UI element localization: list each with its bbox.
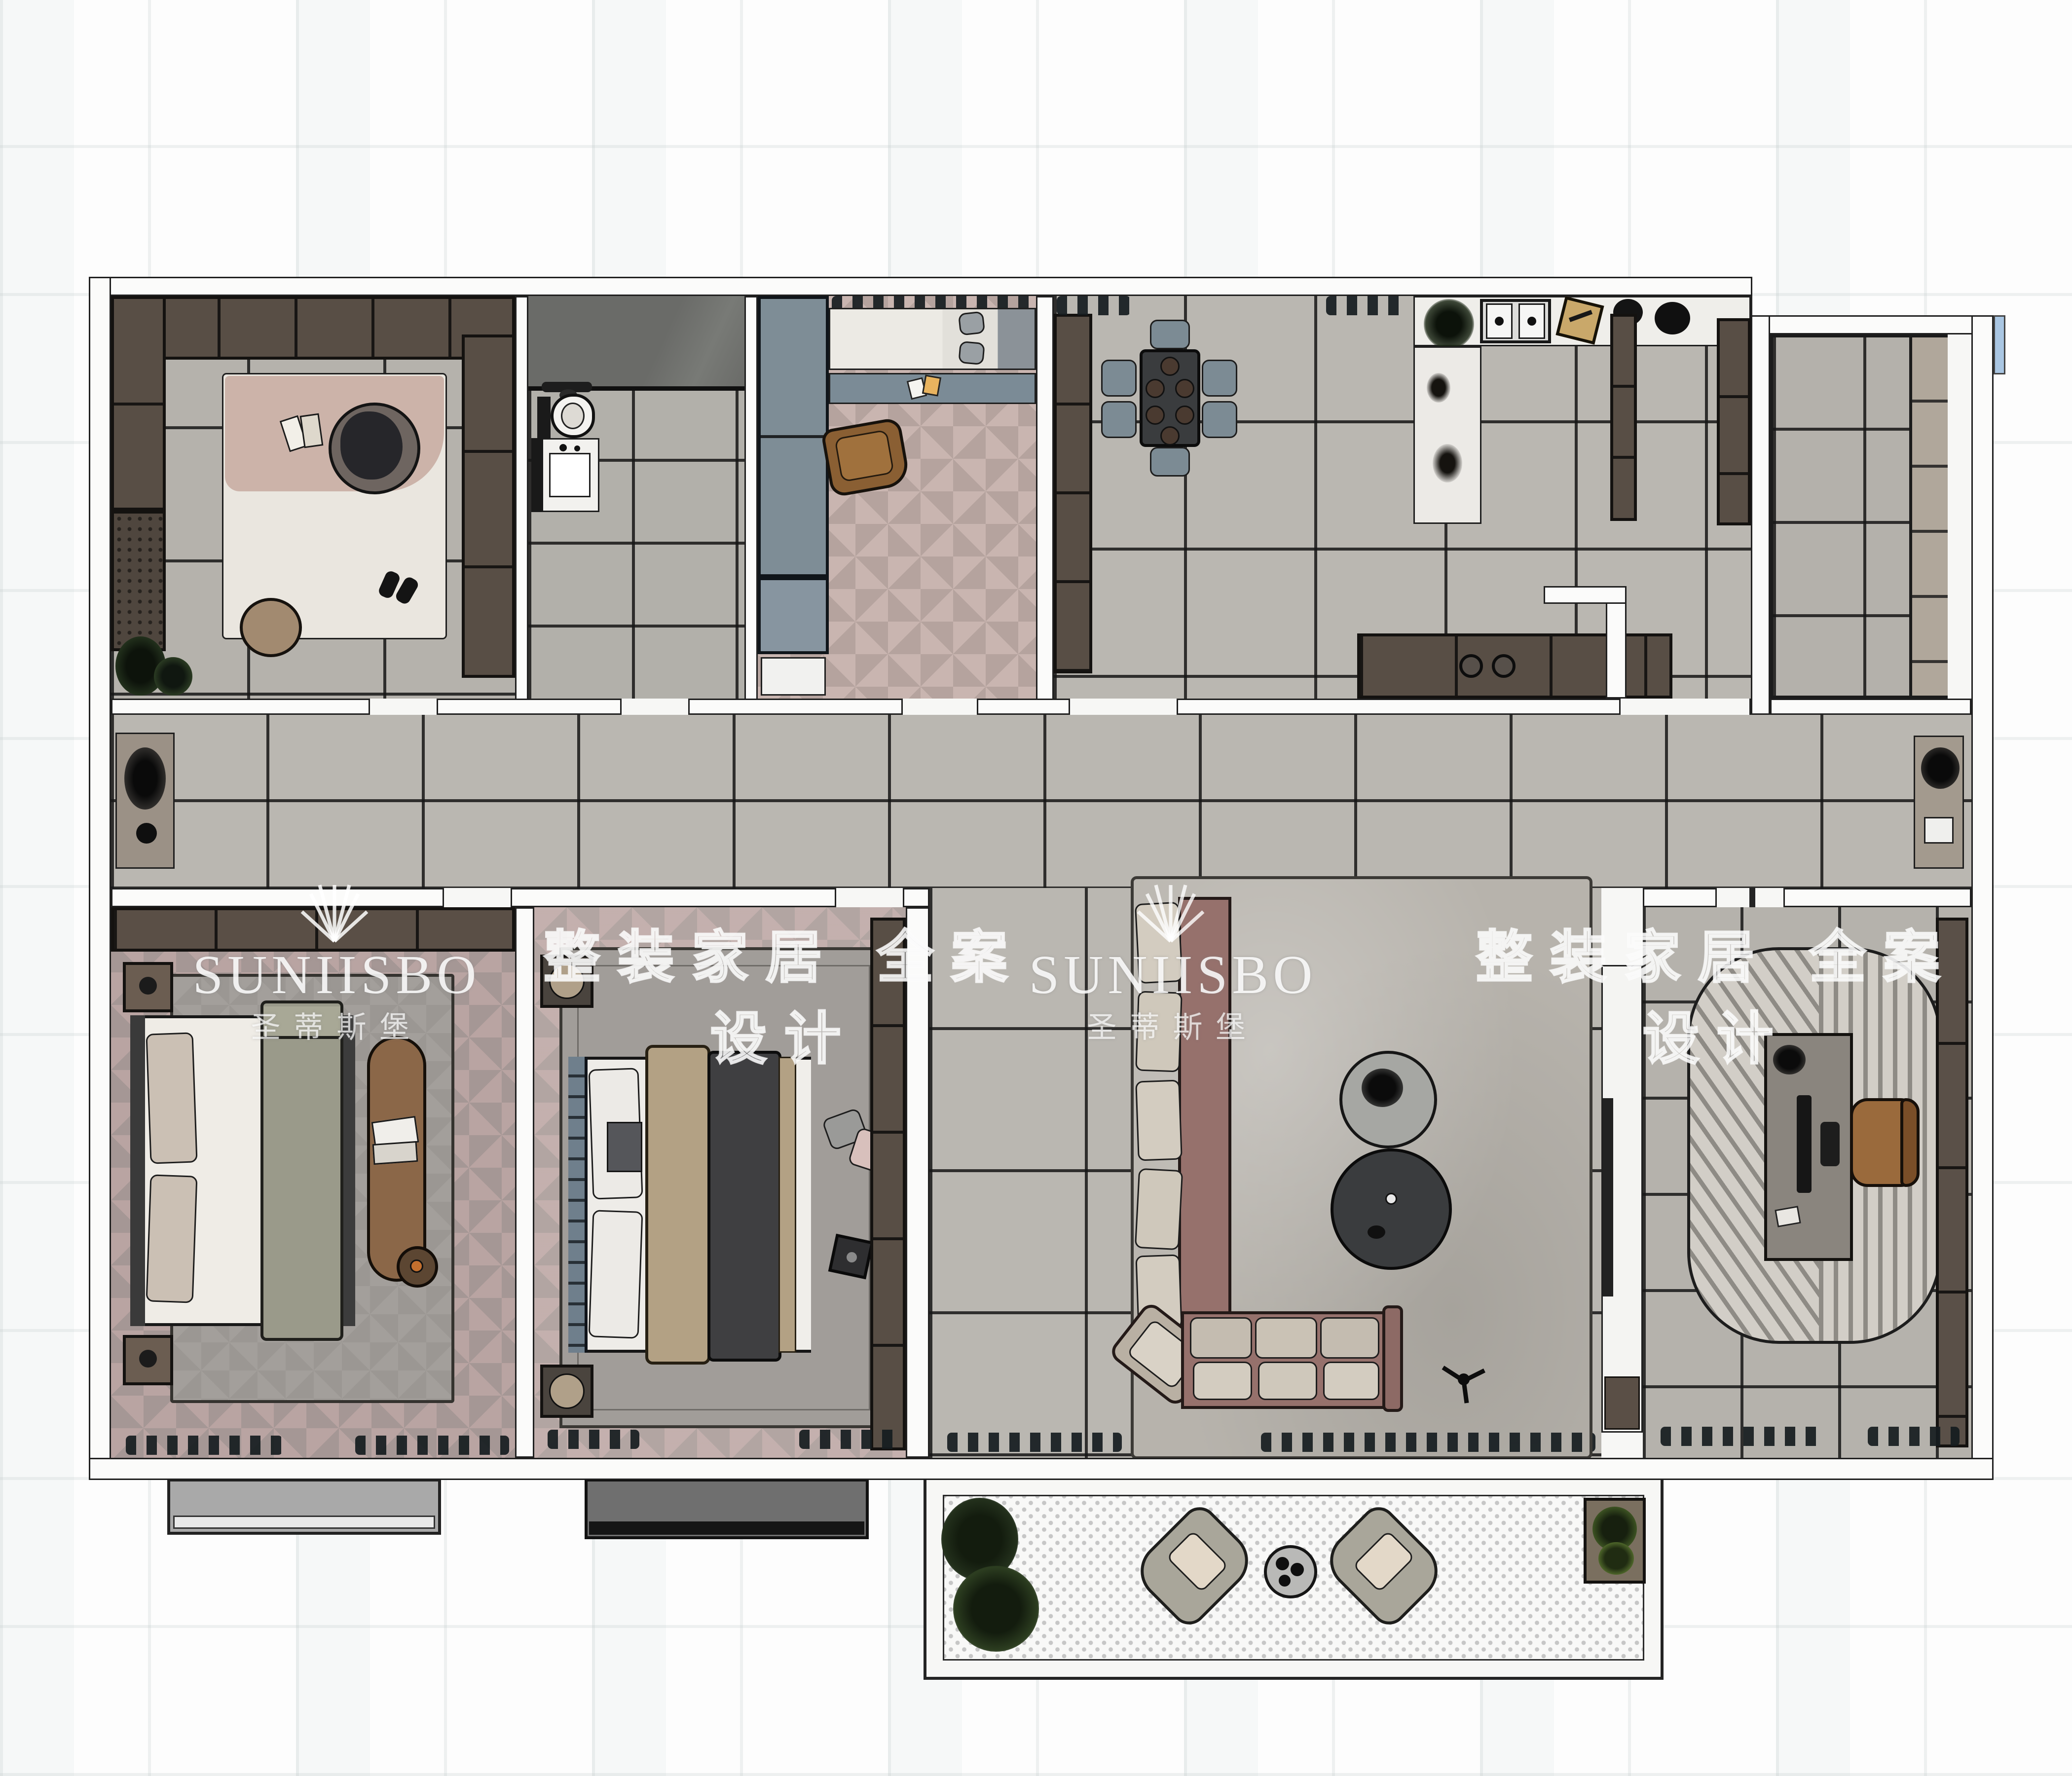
plate-4 [1146,406,1165,425]
hallway-floor [111,715,1971,888]
vanity-soap [574,445,580,451]
dining-chair-top [1150,320,1190,349]
desk-monitor [1797,1095,1812,1193]
wall-outer-top-right-wing [1752,315,1994,334]
vanity-cabinet-side [531,438,543,512]
kitchen-pot-2 [1655,302,1690,334]
wall-kitchen-utility [1751,315,1770,715]
guest-sheet-white [796,1060,811,1350]
hall-top-wall-4 [977,699,1070,715]
hall-top-wall-5 [1177,699,1621,715]
wall-outer-bottom [89,1458,1994,1480]
hallway-plant [124,747,166,810]
wall-outer-left [89,277,111,1480]
cloakroom-plant-2 [154,657,192,696]
island-flower-deco-2 [1433,444,1462,482]
toilet-tank [537,397,551,438]
tv-screen [1603,1098,1613,1296]
brand-watermark-right: SUNIISBO [992,944,1354,1008]
guest-curtain-left [548,1430,639,1449]
wall-outer-top [89,277,1752,296]
guest-pillow-2 [589,1210,643,1338]
desk-keyboard [1820,1122,1840,1166]
brand-watermark-cn-left: 圣蒂斯堡 [222,1003,451,1046]
dining-chair-left-2 [1101,401,1137,438]
cloakroom-left-cabinet-low [111,511,166,651]
plate-2 [1146,379,1165,398]
study-curtain-left [1661,1427,1826,1446]
dining-tall-cabinet [1054,314,1092,673]
wall-outer-right [1971,315,1994,1480]
dining-chair-left-1 [1101,360,1137,397]
console-plant [1921,747,1960,789]
sofa-armrest [1382,1305,1403,1412]
guest-curtain-right [799,1430,897,1449]
shower-zone-marble [528,296,744,391]
cooktop-burner-1 [1459,654,1483,678]
coffee-table-cup [1385,1193,1397,1205]
coffee-table-dark [1331,1148,1452,1270]
hall-bottom-wall-1 [111,888,444,907]
island-flower-deco [1427,373,1450,403]
guest-stool-dot [847,1252,857,1262]
master-blanket-olive [260,1000,343,1341]
slogan-watermark-left: 整装家居 全案设计 [525,912,1043,1074]
sofa-front-cushion-3 [1323,1362,1379,1400]
coffee-table-snack [1368,1225,1385,1239]
sofa-front-cushion-1 [1193,1362,1252,1400]
kitchen-pantry-column [1610,314,1637,521]
vanity-faucet [559,444,567,451]
bay-window-guest-sill [589,1521,864,1535]
guest-duvet-charcoal [707,1051,781,1362]
daybed-magazine-2 [372,1141,418,1165]
small-bedroom-cabinet-low [758,577,829,654]
cloakroom-right-wardrobe [462,334,515,678]
balcony-cup-1 [1276,1557,1289,1570]
dining-window-curtain-right [1326,296,1409,315]
brand-logo-icon-left [296,876,373,944]
sofa-seat-cushion-2 [1255,1317,1317,1359]
sofa-seat-cushion-1 [1190,1317,1252,1359]
small-bed-pillow-2 [958,341,985,365]
hall-bottom-wall-5 [1783,888,1971,907]
plate-3 [1175,379,1194,398]
tv-console [1604,1376,1640,1430]
balcony-cup-3 [1279,1575,1291,1587]
kitchen-herb-plant [1424,299,1474,349]
pouf [240,598,302,657]
sofa-back-cushion-3 [1135,1079,1183,1161]
living-curtain-right [1261,1433,1595,1452]
small-bedroom-wardrobe [758,296,829,577]
plate-1 [1160,357,1180,376]
daybed-tray-snack [410,1259,423,1273]
master-lamp-bottom [139,1350,157,1368]
toilet-seat [561,403,585,429]
brand-watermark-left: SUNIISBO [155,944,518,1008]
bay-window-master-sill [173,1516,435,1529]
small-bed [829,308,1036,370]
plate-6 [1160,426,1180,445]
sofa-back-cushion-4 [1135,1168,1183,1250]
sink-drain-r [1527,317,1536,326]
sink-drain-l [1495,317,1504,326]
cloakroom-top-wardrobe [138,296,515,360]
hall-top-wall-1 [111,699,370,715]
cloakroom-left-wardrobe [111,296,166,511]
lounge-chair-seat [834,429,894,482]
hall-top-wall-2 [437,699,622,715]
balcony-planter-greens-2 [1598,1542,1634,1575]
master-pillow-1 [146,1032,197,1164]
cooktop-burner-2 [1492,654,1516,678]
dining-chair-right-1 [1202,360,1237,397]
entry-closet [1717,318,1751,525]
hall-bottom-wall-4 [1643,888,1717,907]
master-headboard [130,1015,145,1326]
kitchen-island [1413,346,1481,524]
coffee-table-plant [1362,1069,1403,1107]
sofa-front-cushion-2 [1258,1362,1317,1400]
hall-top-wall-3 [688,699,903,715]
hall-bottom-wall-2 [511,888,836,907]
hall-bottom-wall-3 [903,888,929,907]
console-tray [1924,817,1954,844]
brand-watermark-cn-right: 圣蒂斯堡 [1058,1003,1288,1046]
balcony-plant-large-2 [953,1566,1039,1652]
floor-lamp-icon [1439,1356,1489,1406]
small-bed-pillow [958,311,985,335]
guest-tray-bottom [549,1373,585,1409]
dining-chair-right-2 [1202,401,1237,438]
dining-window-curtain-left [1057,296,1131,315]
balcony-cup-2 [1291,1563,1304,1576]
master-pillow-2 [146,1174,198,1303]
plate-5 [1175,406,1194,425]
living-curtain-left [947,1433,1122,1452]
master-footboard [343,1015,355,1326]
brand-logo-icon-right [1132,876,1209,944]
guest-headboard [568,1057,588,1353]
office-chair-back [1900,1098,1920,1187]
sofa-seat-cushion-3 [1320,1317,1379,1359]
guest-blanket-tan [645,1045,710,1365]
swivel-chair-seat [340,411,403,480]
master-lamp-top [139,977,157,995]
master-curtain-left [126,1436,283,1455]
study-curtain-right [1868,1427,1960,1446]
floor-plan-canvas: SUNIISBO 圣蒂斯堡 SUNIISBO 圣蒂斯堡 整装家居 全案设计 整装… [0,0,2072,1776]
vanity-sink [549,453,591,497]
master-curtain-right [355,1436,509,1455]
wall-bedroom-dining [1036,296,1054,715]
wall-cloak-bath [515,296,528,715]
guest-folded-cloth [607,1122,642,1172]
entry-partition-wall-2 [1544,586,1627,604]
wall-bath-bedroom [744,296,758,715]
utility-room-tile-strip [1909,337,1948,696]
bench-papers-2 [922,374,941,396]
pipe-shaft [1994,315,2005,374]
small-bedroom-laundry-box [761,657,826,696]
hallway-plant-base [136,823,157,844]
hall-top-wall-6 [1770,699,1971,715]
dining-chair-bottom [1150,447,1190,477]
slogan-watermark-right: 整装家居 全案设计 [1458,912,1976,1074]
guest-blanket-tan-2 [778,1057,796,1353]
